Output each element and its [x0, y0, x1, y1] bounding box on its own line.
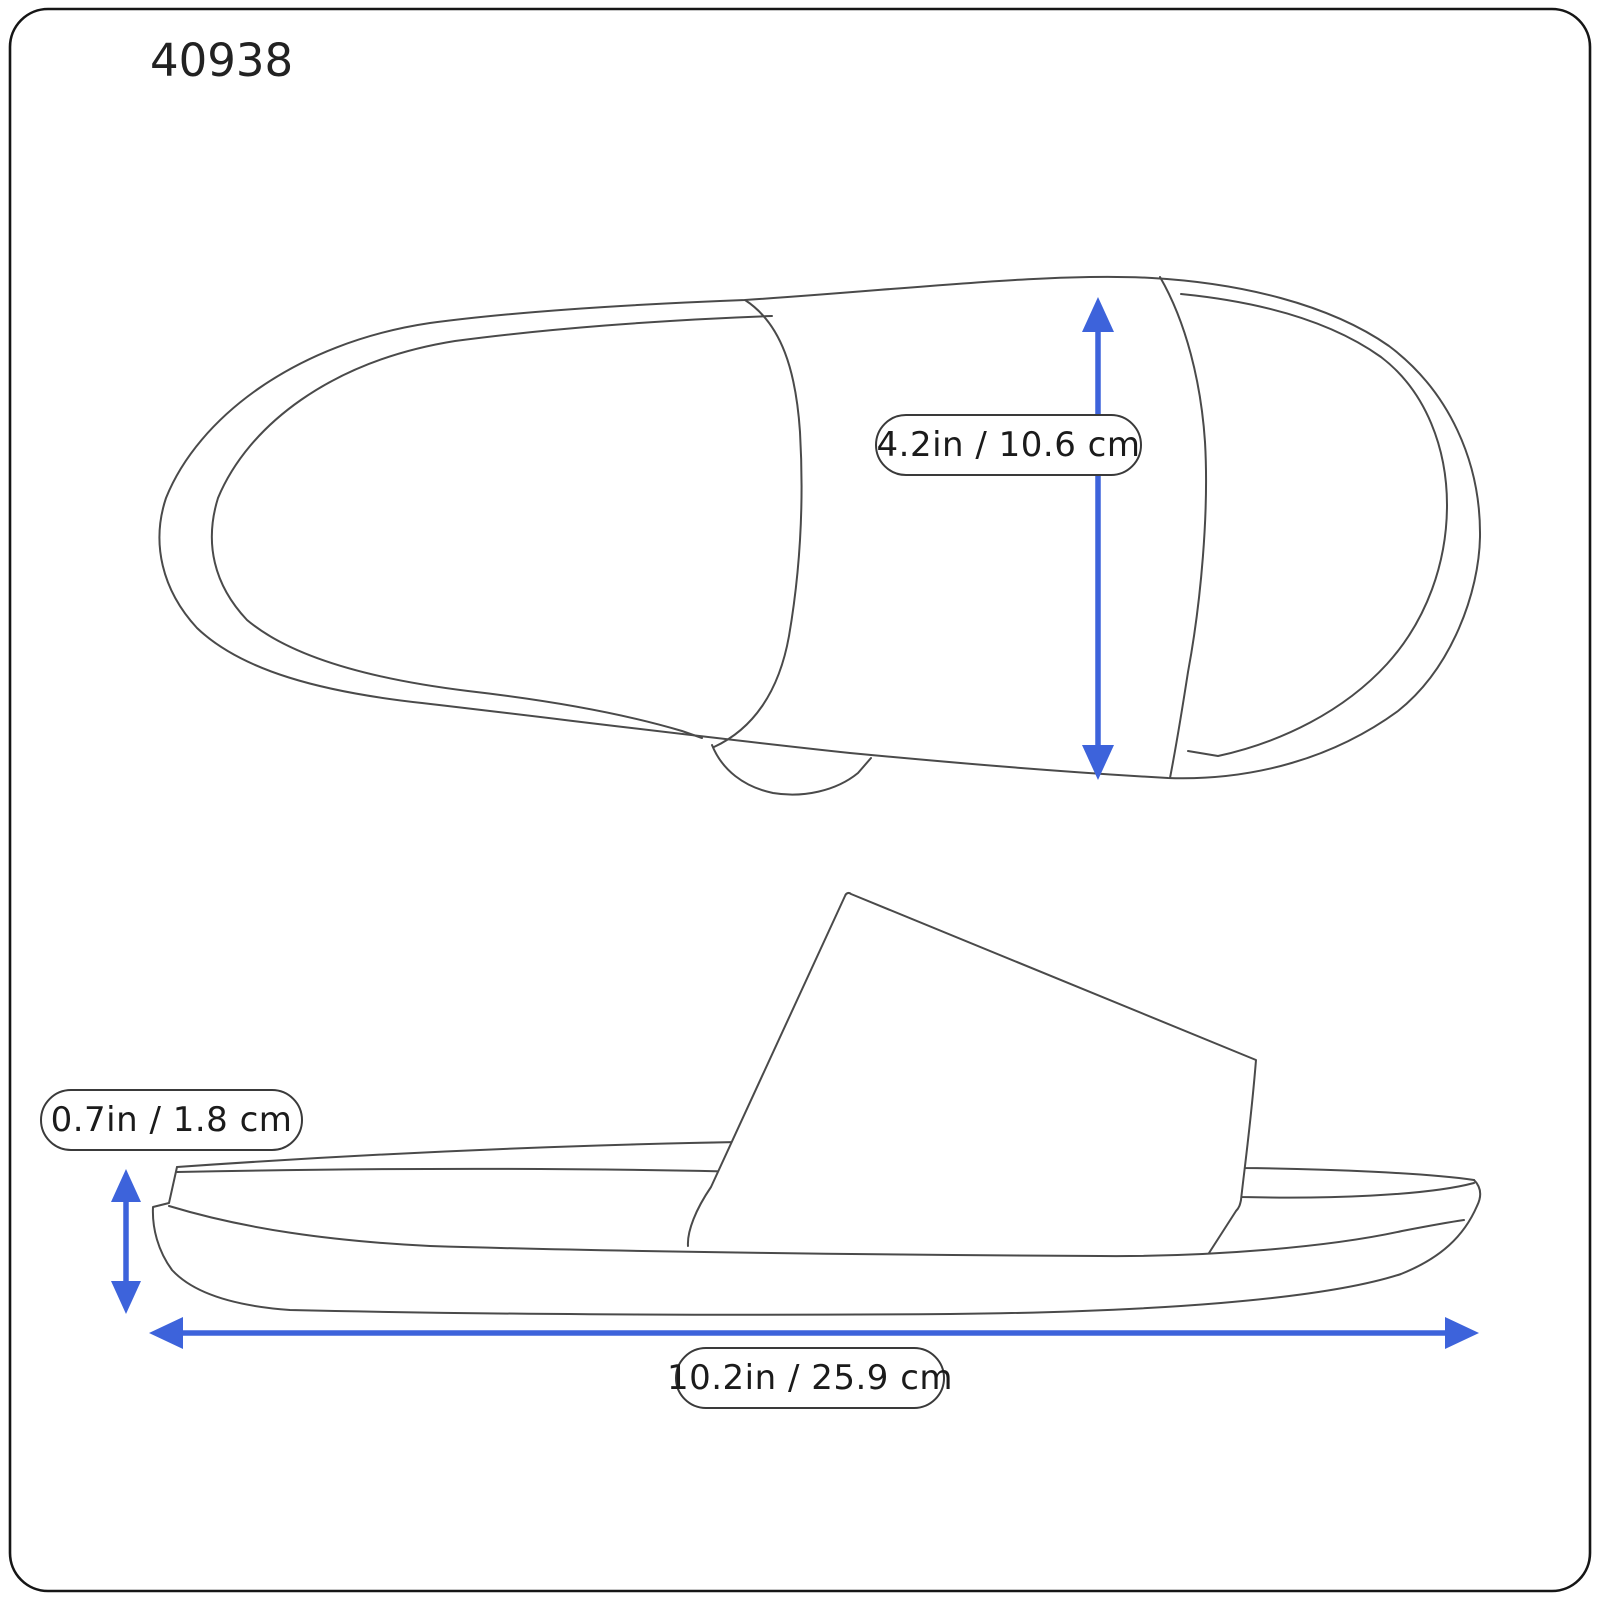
arrow-left-icon	[149, 1317, 183, 1349]
product-code: 40938	[150, 34, 293, 87]
side-view	[153, 893, 1480, 1315]
product-dimension-diagram: 40938 4.2in / 10.6 cm 0.7in / 1.8 cm 10.…	[0, 0, 1600, 1600]
arrow-up-icon	[111, 1169, 141, 1202]
arrow-down-icon	[111, 1281, 141, 1314]
strap-width-arrow	[1082, 297, 1114, 780]
sole-height-arrow	[111, 1169, 141, 1314]
arrow-right-icon	[1445, 1317, 1479, 1349]
length-value: 10.2in / 25.9 cm	[667, 1358, 953, 1398]
arrow-up-icon	[1082, 297, 1114, 332]
top-view-inner-rim-heel	[212, 316, 772, 738]
top-view-strap-left-edge	[714, 300, 802, 747]
sole-height-value: 0.7in / 1.8 cm	[51, 1100, 293, 1140]
length-label: 10.2in / 25.9 cm	[675, 1347, 945, 1409]
top-view-inner-rim-toe	[1181, 294, 1447, 756]
side-view-strap	[688, 893, 1256, 1253]
top-view-outline	[159, 277, 1480, 778]
sole-height-label: 0.7in / 1.8 cm	[40, 1089, 303, 1151]
top-view-strap-right-edge	[1160, 277, 1206, 778]
top-view	[159, 277, 1480, 795]
strap-width-value: 4.2in / 10.6 cm	[877, 425, 1141, 465]
length-arrow	[149, 1317, 1479, 1349]
strap-width-label: 4.2in / 10.6 cm	[875, 414, 1142, 476]
